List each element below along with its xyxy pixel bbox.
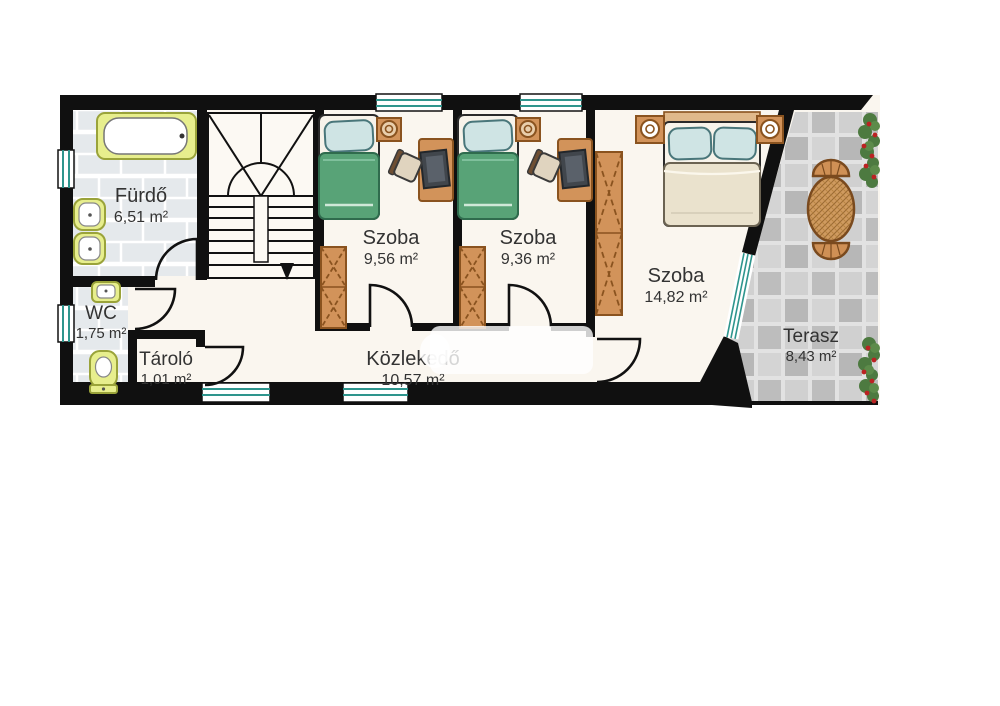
room-area: 8,43 m²	[783, 348, 839, 366]
room-area: 14,82 m²	[644, 288, 707, 307]
room-name: WC	[76, 303, 127, 325]
room-label-szoba3: Szoba 14,82 m²	[644, 265, 707, 307]
room-name: Szoba	[363, 227, 420, 251]
window-icon	[376, 94, 442, 111]
wardrobe-icon	[596, 152, 622, 315]
wc-sink-icon	[92, 282, 120, 302]
bath-sink-icon	[74, 199, 105, 230]
room-area: 9,36 m²	[500, 250, 557, 269]
bathtub-icon	[97, 113, 196, 159]
wall-storage-top	[128, 330, 205, 339]
room-label-szoba2: Szoba 9,36 m²	[500, 227, 557, 269]
room-area: 6,51 m²	[114, 208, 168, 227]
bath-sink-icon	[74, 233, 105, 264]
room-name: Szoba	[500, 227, 557, 251]
terrace-edge	[745, 401, 878, 405]
nightstand-icon	[636, 116, 664, 143]
outer-wall-left	[60, 95, 73, 405]
room-label-terasz: Terasz 8,43 m²	[783, 326, 839, 366]
staircase-icon	[208, 113, 314, 280]
toilet-icon	[90, 351, 117, 393]
floor-plan: Fürdő 6,51 m² WC 1,75 m² Tároló 1,01 m² …	[0, 0, 1000, 706]
wall-storage-right-a	[196, 339, 205, 347]
window-icon	[58, 150, 74, 188]
window-icon	[202, 383, 270, 402]
room-area: 9,56 m²	[363, 250, 420, 269]
room-name: Tároló	[139, 349, 193, 371]
room-name: Szoba	[644, 265, 707, 289]
lamp-icon	[641, 120, 659, 138]
terrace-table-icon	[808, 177, 854, 241]
room-label-szoba1: Szoba 9,56 m²	[363, 227, 420, 269]
room-area: 1,75 m²	[76, 325, 127, 343]
wall-bath-stairs	[197, 110, 207, 280]
room-name: Fürdő	[114, 185, 168, 209]
room-label-furdo: Fürdő 6,51 m²	[114, 185, 168, 227]
room-area: 1,01 m²	[139, 371, 193, 389]
room-label-wc: WC 1,75 m²	[76, 303, 127, 343]
room-area: 10,57 m²	[366, 371, 459, 390]
room-name: Terasz	[783, 326, 839, 348]
lamp-icon	[761, 120, 779, 138]
wall-wc-right	[128, 330, 137, 405]
window-icon	[520, 94, 582, 111]
window-icon	[58, 305, 74, 342]
double-bed-icon	[664, 112, 760, 226]
room-label-tarolo: Tároló 1,01 m²	[139, 349, 193, 389]
nightstand-icon	[757, 116, 783, 143]
outer-wall-top	[60, 95, 873, 110]
watermark	[430, 326, 593, 374]
